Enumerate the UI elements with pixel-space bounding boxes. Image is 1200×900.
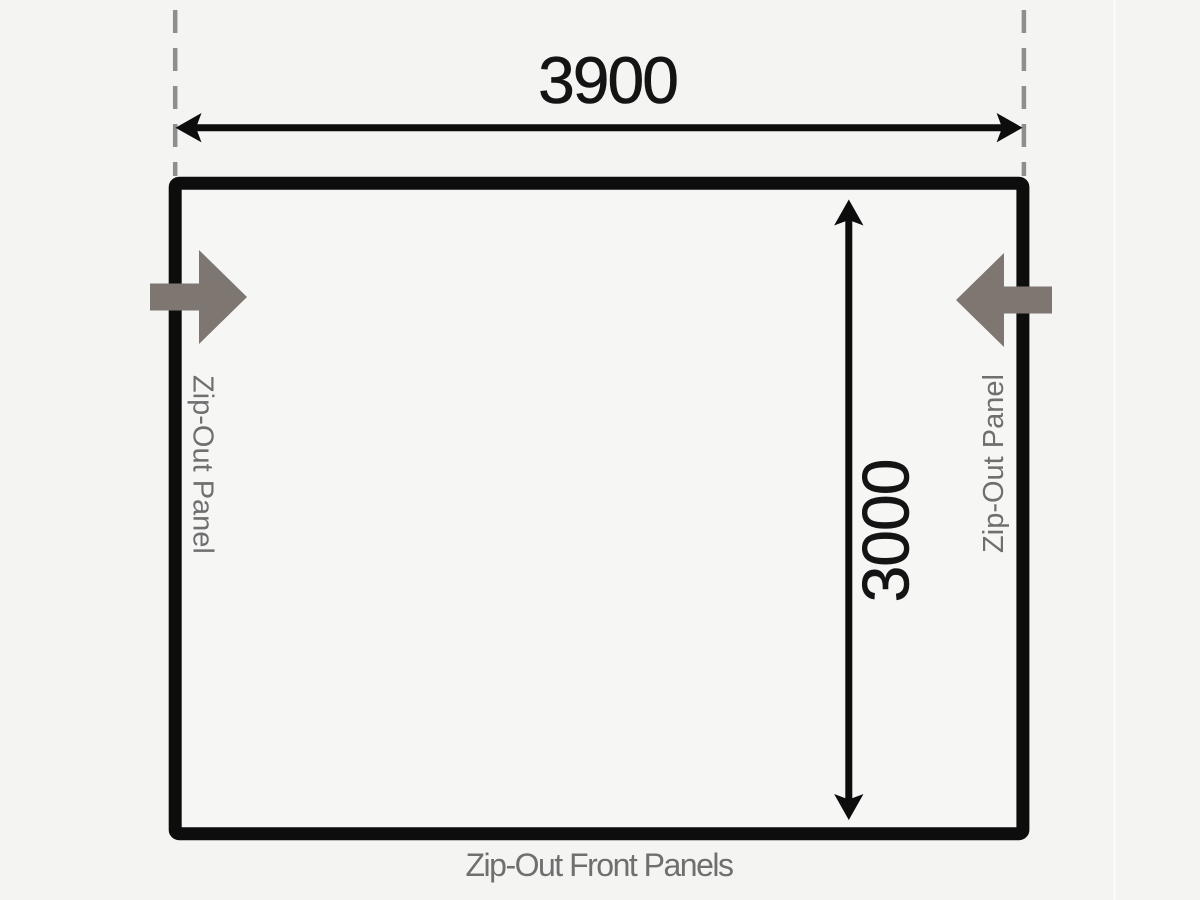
svg-text:3900: 3900	[538, 43, 677, 117]
svg-text:Zip-Out Panel: Zip-Out Panel	[187, 375, 219, 554]
svg-text:Zip-Out Panel: Zip-Out Panel	[978, 374, 1010, 553]
svg-text:3000: 3000	[849, 460, 923, 603]
svg-text:Zip-Out Front Panels: Zip-Out Front Panels	[466, 847, 734, 883]
